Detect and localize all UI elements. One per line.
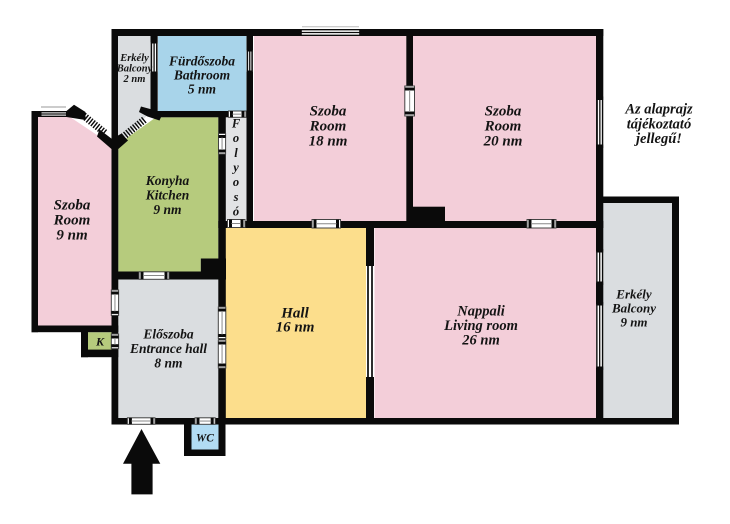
svg-text:Szoba: Szoba: [485, 104, 522, 120]
svg-text:Balcony: Balcony: [611, 301, 656, 316]
svg-text:Az alaprajz: Az alaprajz: [624, 102, 693, 118]
svg-text:16 nm: 16 nm: [276, 320, 315, 336]
svg-text:o: o: [233, 131, 239, 145]
svg-text:20 nm: 20 nm: [483, 134, 523, 150]
svg-text:s: s: [233, 190, 239, 204]
svg-text:ó: ó: [233, 204, 239, 218]
svg-text:Bathroom: Bathroom: [173, 68, 230, 83]
svg-text:Erkély: Erkély: [615, 287, 652, 302]
svg-text:18 nm: 18 nm: [309, 134, 348, 150]
svg-text:Room: Room: [484, 119, 522, 135]
svg-text:F: F: [231, 117, 241, 131]
svg-text:jellegű!: jellegű!: [634, 131, 682, 147]
svg-text:2 nm: 2 nm: [123, 74, 146, 85]
svg-text:9 nm: 9 nm: [620, 315, 647, 330]
svg-text:Szoba: Szoba: [54, 198, 91, 214]
svg-text:y: y: [231, 160, 239, 174]
svg-text:8 nm: 8 nm: [154, 356, 182, 371]
svg-text:Room: Room: [309, 119, 347, 135]
svg-text:Erkély: Erkély: [119, 53, 149, 64]
svg-text:l: l: [234, 146, 238, 160]
svg-text:Entrance hall: Entrance hall: [129, 341, 207, 356]
svg-text:Balcony: Balcony: [116, 64, 153, 75]
svg-text:K: K: [95, 335, 105, 349]
svg-text:Szoba: Szoba: [310, 104, 347, 120]
svg-text:5 nm: 5 nm: [188, 82, 216, 97]
svg-text:tájékoztató: tájékoztató: [627, 116, 691, 132]
svg-text:9 nm: 9 nm: [56, 228, 87, 244]
svg-text:Fürdőszoba: Fürdőszoba: [168, 54, 235, 69]
svg-text:Kitchen: Kitchen: [145, 188, 190, 203]
svg-text:WC: WC: [196, 433, 214, 445]
svg-text:Konyha: Konyha: [145, 173, 190, 188]
svg-text:26 nm: 26 nm: [461, 333, 499, 349]
svg-text:Room: Room: [53, 213, 91, 229]
svg-text:o: o: [233, 175, 239, 189]
svg-text:9 nm: 9 nm: [153, 202, 181, 217]
svg-text:Előszoba: Előszoba: [142, 327, 194, 342]
